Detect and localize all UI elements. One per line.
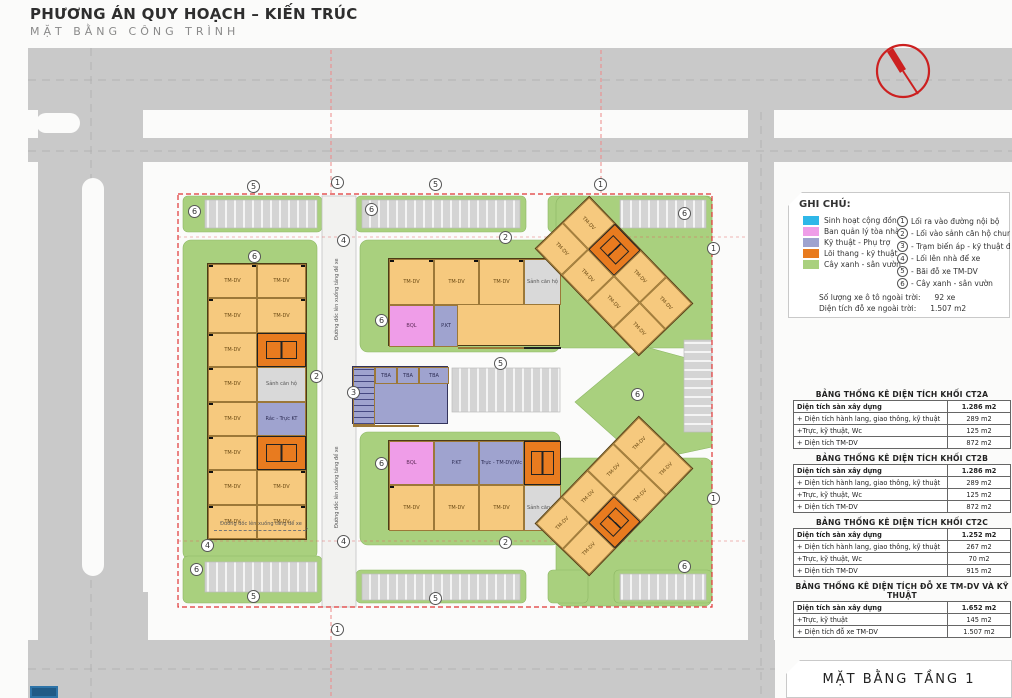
table-row: Diện tích sàn xây dựng1.286 m2 <box>794 401 1011 413</box>
unit-tmdv: TM-DV <box>208 402 257 436</box>
legend-swatches: Sinh hoạt cộng đồng Ban quản lý tòa nhà … <box>789 214 897 291</box>
table-ct2c: Diện tích sàn xây dựng1.252 m2 + Diện tí… <box>793 528 1011 577</box>
legend-swatch-row: Ban quản lý tòa nhà <box>803 227 897 236</box>
core-swatch <box>803 249 819 258</box>
table-row: + Diện tích TM-DV872 m2 <box>794 501 1011 513</box>
unit-tmdv: TM-DV <box>208 367 257 401</box>
unit-tmdv: TM-DV <box>208 470 257 504</box>
plan-marker: 1 <box>594 178 607 191</box>
unit-tmdv: TM-DV <box>389 259 434 305</box>
table-row: Diện tích sàn xây dựng1.252 m2 <box>794 529 1011 541</box>
table-row: + Diện tích TM-DV872 m2 <box>794 437 1011 449</box>
core-lift-shaft <box>524 441 561 485</box>
plan-marker: 4 <box>201 539 214 552</box>
page-subtitle: MẶT BẰNG CÔNG TRÌNH <box>30 25 239 38</box>
lobby: Sảnh căn hộ <box>257 367 306 401</box>
legend-title: GHI CHÚ: <box>799 199 1009 210</box>
ramp-label: Đường dốc lên xuống tầng để xe <box>216 521 306 527</box>
building-ct2b: TM-DV TM-DV TM-DV Sảnh căn hộ BQL P.KT P… <box>388 258 560 346</box>
ramp-label-vertical: Đường dốc lên xuống tầng để xe <box>334 432 340 528</box>
plan-marker: 1 <box>331 623 344 636</box>
plan-marker: 6 <box>631 388 644 401</box>
plan-marker: 5 <box>247 590 260 603</box>
table-row: +Trực, kỹ thuật, Wc125 m2 <box>794 489 1011 501</box>
table-title-parking: BẢNG THỐNG KÊ DIỆN TÍCH ĐỖ XE TM-DV VÀ K… <box>793 582 1011 600</box>
tech-swatch <box>803 238 819 247</box>
unit-tmdv: TM-DV <box>208 436 257 470</box>
tech-room: P.KT <box>434 305 458 347</box>
plan-marker: 6 <box>248 250 261 263</box>
plan-marker: 1 <box>707 242 720 255</box>
tech-room: P.KT <box>434 441 479 485</box>
tech-room: P.KT <box>458 347 479 349</box>
sheet-title-panel: MẶT BẰNG TẦNG 1 <box>786 660 1012 698</box>
building-ct2c: BQL P.KT Trực - TM-DV/Wc TM-DV TM-DV TM-… <box>388 440 560 530</box>
plan-marker: 1 <box>707 492 720 505</box>
tech-room: Rác - Trực KT <box>257 402 306 436</box>
unit-tmdv: TM-DV <box>257 470 306 504</box>
table-row: + Diện tích hành lang, giao thông, kỹ th… <box>794 477 1011 489</box>
plan-marker: 6 <box>678 207 691 220</box>
legend-num-row: 1Lối ra vào đường nội bộ <box>897 216 1012 227</box>
unit-tmdv: TM-DV <box>389 485 434 531</box>
table-ct2b: Diện tích sàn xây dựng1.286 m2 + Diện tí… <box>793 464 1011 513</box>
generator-room: MPĐ <box>353 425 419 427</box>
table-row: +Trực, kỹ thuật, Wc70 m2 <box>794 553 1011 565</box>
unit-tmdv: TM-DV <box>479 259 524 305</box>
plan-marker: 5 <box>429 592 442 605</box>
tech-room: Trực - TM-DV/Wc <box>479 441 524 485</box>
unit-tmdv: TM-DV <box>208 333 257 367</box>
building-ct2a: TM-DV TM-DV TM-DV TM-DV TM-DV TM-DV Sảnh… <box>207 263 307 540</box>
unit-tmdv: TM-DV <box>479 485 524 531</box>
tba-room: TBA <box>419 367 449 384</box>
legend-num-row: 4- Lối lên nhà để xe <box>897 253 1012 264</box>
green-swatch <box>803 260 819 269</box>
plan-marker: 4 <box>337 535 350 548</box>
area-tables: BẢNG THỐNG KÊ DIỆN TÍCH KHỐI CT2A Diện t… <box>793 385 1011 638</box>
table-row: + Diện tích đỗ xe TM-DV1.507 m2 <box>794 626 1011 638</box>
legend-columns: Sinh hoạt cộng đồng Ban quản lý tòa nhà … <box>789 214 1009 291</box>
logo-stamp <box>30 686 58 698</box>
legend-swatch-row: Sinh hoạt cộng đồng <box>803 216 897 225</box>
management-swatch <box>803 227 819 236</box>
legend-num-row: 6- Cây xanh - sân vườn <box>897 278 1012 289</box>
plan-marker: 1 <box>331 176 344 189</box>
plan-marker: 6 <box>365 203 378 216</box>
tba-room: TBA <box>375 367 397 384</box>
page-title: PHƯƠNG ÁN QUY HOẠCH – KIẾN TRÚC <box>30 5 358 23</box>
plan-marker: 6 <box>188 205 201 218</box>
parking-count-stat: Số lượng xe ô tô ngoài trời:92 xe <box>819 293 1009 302</box>
table-row: Diện tích sàn xây dựng1.652 m2 <box>794 602 1011 614</box>
core-lift-shaft <box>257 436 306 470</box>
table-row: + Diện tích TM-DV915 m2 <box>794 565 1011 577</box>
plan-marker: 5 <box>494 357 507 370</box>
plan-marker: 4 <box>337 234 350 247</box>
legend-swatch-row: Cây xanh - sân vườn <box>803 260 897 269</box>
plan-marker: 5 <box>247 180 260 193</box>
table-row: + Diện tích hành lang, giao thông, kỹ th… <box>794 413 1011 425</box>
plan-marker: 5 <box>429 178 442 191</box>
legend-num-row: 3- Trạm biến áp - kỹ thuật điện <box>897 241 1012 252</box>
plan-marker: 6 <box>375 457 388 470</box>
ramp-arrow-head: › <box>305 524 308 533</box>
plan-marker: 2 <box>499 231 512 244</box>
table-title-ct2c: BẢNG THỐNG KÊ DIỆN TÍCH KHỐI CT2C <box>793 518 1011 527</box>
table-row: +Trực, kỹ thuật, Wc125 m2 <box>794 425 1011 437</box>
core-lift-shaft <box>524 347 561 349</box>
plan-marker: 6 <box>678 560 691 573</box>
north-arrow-icon <box>872 40 934 102</box>
management-room: BQL <box>389 441 434 485</box>
table-row: +Trực, kỹ thuật145 m2 <box>794 614 1011 626</box>
core-lift-shaft <box>257 333 306 367</box>
plan-marker: 3 <box>347 386 360 399</box>
table-title-ct2a: BẢNG THỐNG KÊ DIỆN TÍCH KHỐI CT2A <box>793 390 1011 399</box>
legend-num-row: 5- Bãi đỗ xe TM-DV <box>897 266 1012 277</box>
substation-block: TBA TBA TBA MPĐ <box>352 366 448 424</box>
table-row: Diện tích sàn xây dựng1.286 m2 <box>794 465 1011 477</box>
legend-num-row: 2- Lối vào sảnh căn hộ chung cư <box>897 228 1012 239</box>
sheet-title: MẶT BẰNG TẦNG 1 <box>823 672 976 687</box>
unit-tmdv: TM-DV <box>257 264 306 298</box>
tech-room: Trực - TM-DV/Wc <box>479 347 524 349</box>
plan-marker: 2 <box>499 536 512 549</box>
site-plan: PHƯƠNG ÁN QUY HOẠCH – KIẾN TRÚC MẶT BẰNG… <box>0 0 1012 698</box>
legend-numbered: 1Lối ra vào đường nội bộ 2- Lối vào sảnh… <box>897 214 1012 291</box>
table-parking: Diện tích sàn xây dựng1.652 m2 +Trực, kỹ… <box>793 601 1011 638</box>
community-swatch <box>803 216 819 225</box>
unit-tmdv: TM-DV <box>208 298 257 332</box>
management-room: BQL <box>389 305 434 347</box>
table-title-ct2b: BẢNG THỐNG KÊ DIỆN TÍCH KHỐI CT2B <box>793 454 1011 463</box>
plan-marker: 6 <box>190 563 203 576</box>
plan-marker: 6 <box>375 314 388 327</box>
unit-tmdv: TM-DV <box>434 485 479 531</box>
plan-marker: 2 <box>310 370 323 383</box>
ramp-arrow-line <box>214 530 306 531</box>
parking-area-stat: Diện tích đỗ xe ngoài trời:1.507 m2 <box>819 304 1009 313</box>
table-ct2a: Diện tích sàn xây dựng1.286 m2 + Diện tí… <box>793 400 1011 449</box>
legend-swatch-row: Lõi thang - kỹ thuật <box>803 249 897 258</box>
unit-tmdv: TM-DV <box>257 298 306 332</box>
legend-panel: GHI CHÚ: Sinh hoạt cộng đồng Ban quản lý… <box>788 192 1010 318</box>
table-row: + Diện tích hành lang, giao thông, kỹ th… <box>794 541 1011 553</box>
unit-tmdv: TM-DV <box>434 259 479 305</box>
tba-room: TBA <box>397 367 419 384</box>
ramp-label-vertical: Đường dốc lên xuống tầng để xe <box>334 248 340 340</box>
legend-swatch-row: Kỹ thuật - Phụ trợ <box>803 238 897 247</box>
unit-tmdv: TM-DV <box>208 264 257 298</box>
